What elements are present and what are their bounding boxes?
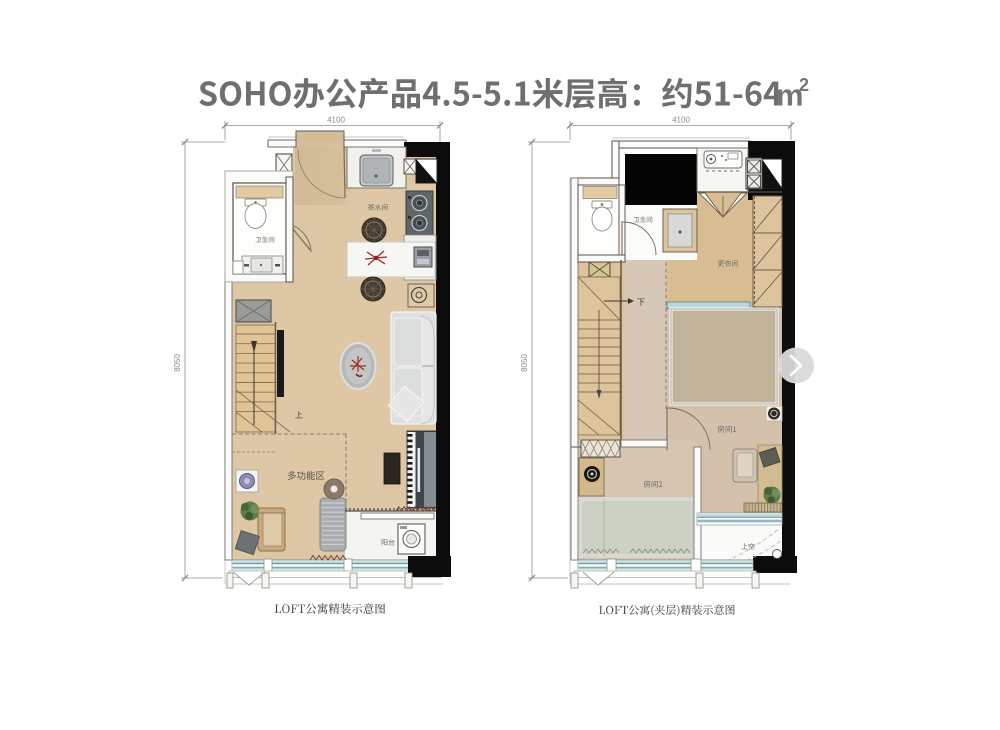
svg-text:8050: 8050 — [520, 354, 529, 372]
svg-text:4100: 4100 — [672, 116, 690, 125]
svg-text:8050: 8050 — [173, 354, 182, 372]
svg-text:4100: 4100 — [327, 116, 345, 125]
svg-text:2: 2 — [799, 75, 809, 95]
